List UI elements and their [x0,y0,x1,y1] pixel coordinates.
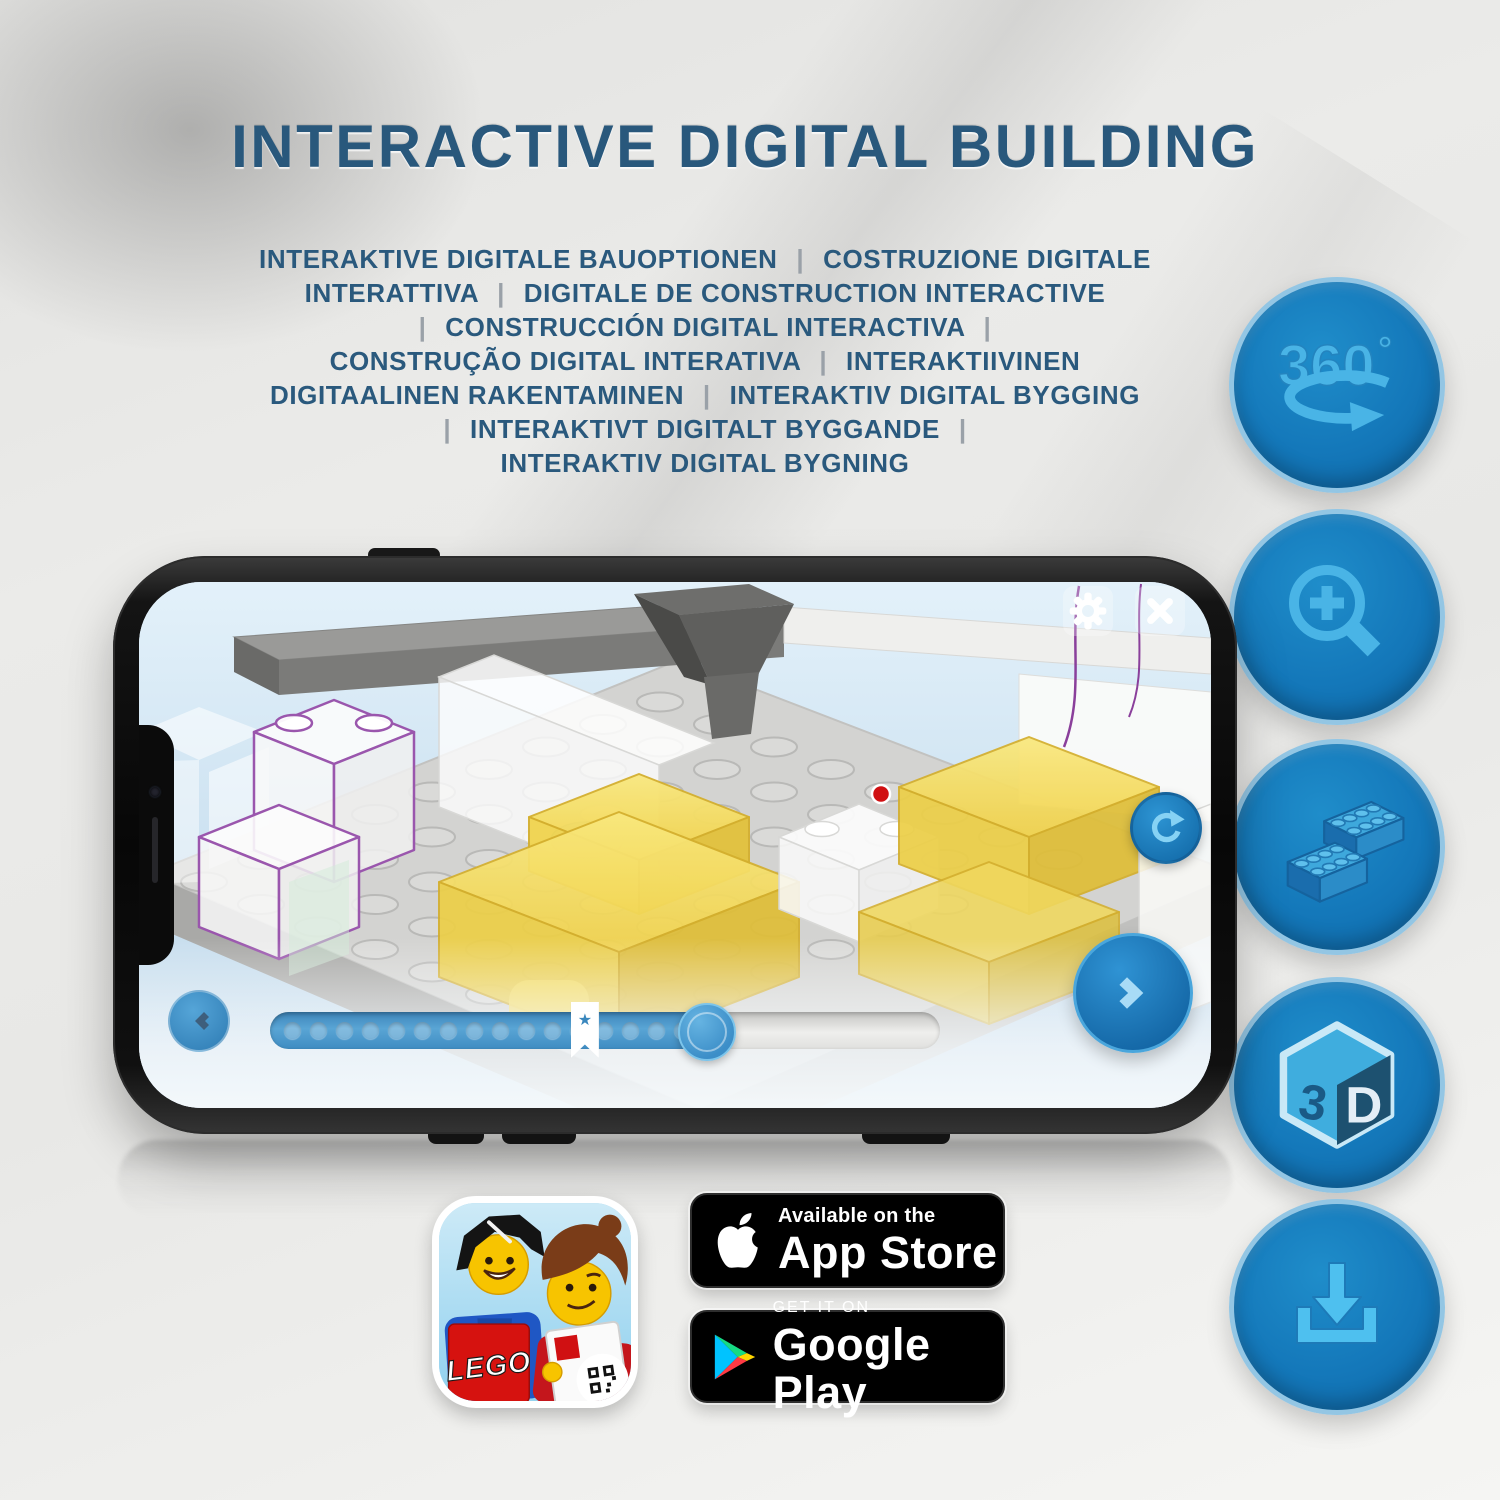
slider-dot [466,1022,483,1039]
slider-dot [284,1022,301,1039]
feature-zoom-icon [1229,509,1445,725]
gear-icon [1066,589,1110,633]
slider-fill [270,1012,706,1049]
lego-logo-stud [872,785,890,803]
earpiece-speaker [152,817,158,883]
feature-3d-view-icon: 3 D [1229,977,1445,1193]
subtitle-line: | INTERAKTIVT DIGITALT BYGGANDE | [80,412,1330,446]
subtitle: INTERAKTIVE DIGITALE BAUOPTIONEN | COSTR… [80,242,1330,480]
subtitle-line: INTERAKTIV DIGITAL BYGNING [80,446,1330,480]
page-title: INTERACTIVE DIGITAL BUILDING [0,112,1490,181]
lego-app-icon[interactable]: LEGO [432,1196,638,1408]
slider-dot [310,1022,327,1039]
phone-reflection [118,1140,1232,1218]
rotate-reset-icon [1144,806,1188,850]
subtitle-line: INTERAKTIVE DIGITALE BAUOPTIONEN | COSTR… [80,242,1330,276]
subtitle-line: | CONSTRUCCIÓN DIGITAL INTERACTIVA | [80,310,1330,344]
lego-app-icon-art: LEGO [439,1203,631,1401]
previous-step-button[interactable] [168,990,230,1052]
3d-cube-icon: 3 D [1262,1010,1412,1160]
google-play-name: Google Play [773,1321,1003,1417]
rotate-reset-button[interactable] [1130,792,1202,864]
subtitle-line: DIGITAALINEN RAKENTAMINEN | INTERAKTIV D… [80,378,1330,412]
download-icon [1267,1237,1407,1377]
slider-dot [414,1022,431,1039]
phone: ★ [113,556,1237,1134]
app-store-badge[interactable]: Available on the App Store [690,1193,1005,1288]
subtitle-line: CONSTRUÇÃO DIGITAL INTERATIVA | INTERAKT… [80,344,1330,378]
slider-dot [362,1022,379,1039]
slider-dot [648,1022,665,1039]
feature-brick-icon [1229,739,1445,955]
subtitle-line: INTERATTIVA | DIGITALE DE CONSTRUCTION I… [80,276,1330,310]
slider-dot [440,1022,457,1039]
360-icon: 360 ° [1262,310,1412,460]
close-icon [1140,591,1180,631]
slider-dot [336,1022,353,1039]
feature-360-rotation-icon: 360 ° [1229,277,1445,493]
slider-dot [518,1022,535,1039]
svg-text:°: ° [1378,328,1393,369]
slider-dot [492,1022,509,1039]
lego-brick-icon [1262,772,1412,922]
chevron-right-icon [1102,962,1164,1024]
google-play-tagline: GET IT ON [773,1297,1003,1319]
close-button[interactable] [1135,586,1185,636]
app-store-tagline: Available on the [778,1205,998,1227]
instruction-booklet [545,1321,631,1401]
feature-download-icon [1229,1199,1445,1415]
google-play-icon [710,1329,759,1385]
chevron-left-icon [184,1006,214,1036]
slider-dot [622,1022,639,1039]
slider-dot [544,1022,561,1039]
slider-dot [388,1022,405,1039]
google-play-badge[interactable]: GET IT ON Google Play [690,1310,1005,1403]
phone-notch [139,725,174,965]
settings-button[interactable] [1063,586,1113,636]
promo-canvas: INTERACTIVE DIGITAL BUILDING INTERAKTIVE… [0,0,1500,1500]
app-store-name: App Store [778,1229,998,1277]
front-camera-icon [150,787,160,797]
svg-text:D: D [1345,1076,1382,1134]
lego-logo: LEGO [444,1324,533,1401]
next-step-button[interactable] [1073,933,1193,1053]
zoom-in-icon [1267,547,1407,687]
phone-screen: ★ [139,582,1211,1108]
build-step-slider[interactable]: ★ [270,1012,940,1049]
apple-logo-icon [712,1210,764,1272]
